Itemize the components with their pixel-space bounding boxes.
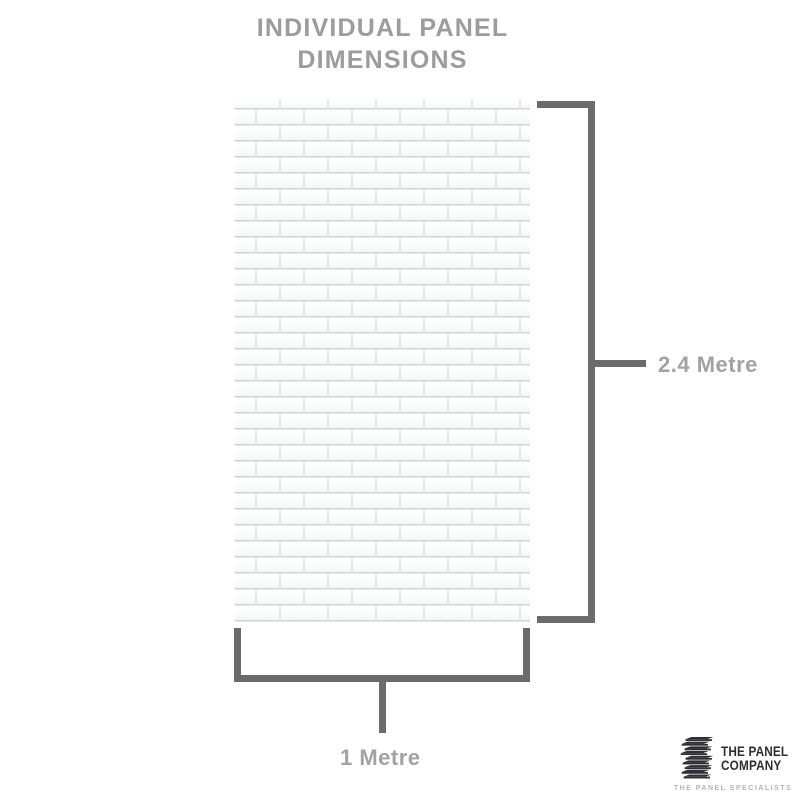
brick-tile [329, 446, 375, 460]
brick-row [235, 110, 530, 124]
brick-tile [497, 462, 530, 476]
brick-tile [353, 366, 399, 380]
height-bracket-bottom-arm [537, 616, 595, 623]
brick-tile [329, 510, 375, 524]
brick-tile [235, 526, 255, 540]
page-title-line1: INDIVIDUAL PANEL [185, 12, 580, 44]
brick-tile [377, 350, 423, 364]
brick-tile [281, 574, 327, 588]
brick-tile [329, 574, 375, 588]
brick-tile [235, 254, 279, 268]
brick-tile [257, 398, 303, 412]
brick-tile [521, 100, 530, 108]
brick-row [235, 478, 530, 492]
brick-tile [353, 206, 399, 220]
brick-tile [377, 606, 423, 620]
brick-tile [425, 126, 471, 140]
brick-tile [449, 430, 495, 444]
brick-tile [377, 254, 423, 268]
brick-row [235, 494, 530, 508]
brick-tile [425, 382, 471, 396]
brick-row [235, 446, 530, 460]
brick-tile [473, 478, 519, 492]
brick-tile [425, 510, 471, 524]
brick-row [235, 100, 530, 108]
brick-row [235, 238, 530, 252]
brick-tile [305, 206, 351, 220]
brick-row [235, 206, 530, 220]
brick-tile [329, 606, 375, 620]
brick-tile [497, 142, 530, 156]
brick-tile [235, 302, 255, 316]
brick-tile [281, 190, 327, 204]
brick-tile [235, 142, 255, 156]
brick-tile [425, 542, 471, 556]
brick-tile [353, 302, 399, 316]
brick-row [235, 286, 530, 300]
brick-tile [235, 478, 279, 492]
brick-tile [235, 462, 255, 476]
brick-tile [257, 590, 303, 604]
brick-row [235, 142, 530, 156]
brick-tile [329, 100, 375, 108]
brick-tile [473, 446, 519, 460]
brick-tile [305, 334, 351, 348]
brick-tile [377, 382, 423, 396]
brick-tile [449, 398, 495, 412]
brick-tile [377, 574, 423, 588]
brick-tile [305, 494, 351, 508]
brick-tile [425, 222, 471, 236]
brick-tile [449, 238, 495, 252]
brick-tile [257, 494, 303, 508]
brick-tile [377, 414, 423, 428]
brick-tile [497, 366, 530, 380]
brick-tile [425, 318, 471, 332]
brick-tile [281, 510, 327, 524]
logo-name: THE PANEL COMPANY [721, 744, 788, 772]
brick-tile [281, 286, 327, 300]
brick-tile [353, 174, 399, 188]
brick-tile [377, 100, 423, 108]
brick-tile [305, 590, 351, 604]
brick-tile [377, 478, 423, 492]
brick-tile [353, 462, 399, 476]
brick-row [235, 174, 530, 188]
brick-tile [449, 526, 495, 540]
brick-tile [521, 574, 530, 588]
brick-tile [449, 302, 495, 316]
brick-row [235, 462, 530, 476]
height-bracket-tick [593, 360, 646, 367]
brick-row [235, 622, 530, 623]
brick-tile [305, 366, 351, 380]
brick-tile [401, 238, 447, 252]
brick-tile [521, 126, 530, 140]
brick-tile [449, 174, 495, 188]
brick-tile [235, 574, 279, 588]
brick-tile [305, 430, 351, 444]
brick-tile [377, 542, 423, 556]
brick-tile [235, 190, 279, 204]
brick-tile [329, 158, 375, 172]
brick-tile [449, 462, 495, 476]
company-logo: THE PANEL COMPANY THE PANEL SPECIALISTS [672, 736, 794, 792]
brick-tile [329, 286, 375, 300]
brick-row [235, 158, 530, 172]
brick-tile [497, 334, 530, 348]
brick-tile [235, 398, 255, 412]
brick-tile [235, 606, 279, 620]
stacked-panels-icon [678, 736, 718, 780]
page-title-line2: DIMENSIONS [185, 44, 580, 76]
brick-row [235, 510, 530, 524]
brick-tile [401, 334, 447, 348]
brick-tile [449, 142, 495, 156]
brick-tile [257, 142, 303, 156]
brick-tile [377, 446, 423, 460]
brick-tile [497, 430, 530, 444]
brick-tile [329, 350, 375, 364]
brick-tile [353, 270, 399, 284]
brick-row [235, 366, 530, 380]
brick-tile [425, 350, 471, 364]
brick-tile [235, 334, 255, 348]
panel-texture [235, 100, 530, 623]
brick-row [235, 350, 530, 364]
brick-tile [281, 126, 327, 140]
brick-tile [425, 254, 471, 268]
brick-row [235, 430, 530, 444]
brick-tile [425, 446, 471, 460]
brick-tile [401, 270, 447, 284]
brick-tile [235, 558, 255, 572]
brick-tile [449, 334, 495, 348]
brick-tile [449, 622, 495, 623]
brick-tile [473, 574, 519, 588]
brick-tile [353, 398, 399, 412]
brick-tile [425, 414, 471, 428]
brick-tile [353, 558, 399, 572]
brick-tile [497, 526, 530, 540]
brick-tile [235, 590, 255, 604]
brick-tile [235, 158, 279, 172]
brick-tile [521, 510, 530, 524]
brick-tile [305, 270, 351, 284]
brick-tile [449, 494, 495, 508]
brick-tile [473, 510, 519, 524]
brick-tile [497, 174, 530, 188]
brick-tile [329, 382, 375, 396]
brick-tile [473, 382, 519, 396]
brick-tile [521, 318, 530, 332]
brick-tile [497, 302, 530, 316]
brick-tile [497, 398, 530, 412]
brick-tile [257, 238, 303, 252]
brick-row [235, 302, 530, 316]
brick-tile [425, 158, 471, 172]
brick-tile [235, 510, 279, 524]
brick-tile [473, 414, 519, 428]
brick-tile [521, 286, 530, 300]
brick-tile [401, 142, 447, 156]
brick-tile [377, 286, 423, 300]
brick-tile [305, 302, 351, 316]
brick-tile [235, 366, 255, 380]
logo-name-line1: THE PANEL [721, 744, 788, 758]
brick-row [235, 254, 530, 268]
brick-tile [329, 478, 375, 492]
brick-tile [235, 350, 279, 364]
brick-tile [353, 238, 399, 252]
page-title: INDIVIDUAL PANEL DIMENSIONS [185, 12, 580, 76]
height-bracket-top-arm [537, 101, 595, 108]
logo-name-line2: COMPANY [721, 758, 788, 772]
brick-tile [305, 142, 351, 156]
brick-tile [401, 398, 447, 412]
brick-row [235, 398, 530, 412]
brick-tile [281, 382, 327, 396]
brick-tile [521, 382, 530, 396]
brick-tile [497, 558, 530, 572]
brick-row [235, 574, 530, 588]
brick-tile [281, 318, 327, 332]
brick-tile [521, 606, 530, 620]
brick-tile [449, 270, 495, 284]
brick-tile [521, 222, 530, 236]
brick-tile [425, 286, 471, 300]
brick-row [235, 606, 530, 620]
width-bracket-right-arm [523, 628, 530, 682]
brick-row [235, 526, 530, 540]
brick-tile [281, 100, 327, 108]
brick-row [235, 558, 530, 572]
brick-row [235, 334, 530, 348]
brick-tile [401, 462, 447, 476]
brick-tile [353, 334, 399, 348]
brick-tile [281, 222, 327, 236]
brick-tile [401, 174, 447, 188]
brick-row [235, 190, 530, 204]
brick-tile [305, 174, 351, 188]
brick-tile [401, 366, 447, 380]
brick-tile [497, 206, 530, 220]
brick-tile [281, 158, 327, 172]
panel-illustration [235, 100, 530, 623]
brick-tile [353, 526, 399, 540]
brick-tile [281, 606, 327, 620]
brick-tile [257, 334, 303, 348]
brick-tile [473, 350, 519, 364]
brick-tile [305, 110, 351, 124]
logo-tagline: THE PANEL SPECIALISTS [672, 785, 794, 792]
brick-tile [329, 222, 375, 236]
brick-tile [521, 446, 530, 460]
brick-tile [473, 318, 519, 332]
brick-tile [425, 606, 471, 620]
brick-tile [257, 206, 303, 220]
brick-tile [449, 590, 495, 604]
brick-row [235, 222, 530, 236]
brick-tile [235, 318, 279, 332]
brick-tile [305, 398, 351, 412]
width-dimension-label: 1 Metre [340, 745, 421, 771]
brick-tile [305, 238, 351, 252]
brick-row [235, 414, 530, 428]
brick-tile [449, 110, 495, 124]
brick-tile [235, 542, 279, 556]
brick-tile [401, 558, 447, 572]
brick-tile [473, 100, 519, 108]
brick-tile [257, 174, 303, 188]
brick-tile [281, 350, 327, 364]
brick-tile [497, 270, 530, 284]
brick-tile [235, 126, 279, 140]
brick-tile [425, 190, 471, 204]
brick-tile [377, 190, 423, 204]
brick-tile [257, 462, 303, 476]
brick-tile [235, 110, 255, 124]
brick-tile [521, 158, 530, 172]
brick-tile [377, 318, 423, 332]
brick-tile [329, 318, 375, 332]
brick-tile [521, 414, 530, 428]
brick-tile [473, 222, 519, 236]
brick-tile [257, 558, 303, 572]
brick-tile [235, 414, 279, 428]
brick-tile [401, 526, 447, 540]
infographic-canvas: INDIVIDUAL PANEL DIMENSIONS 2.4 Metre 1 … [0, 0, 800, 800]
brick-tile [377, 126, 423, 140]
brick-tile [305, 462, 351, 476]
brick-tile [235, 270, 255, 284]
brick-tile [521, 350, 530, 364]
brick-tile [449, 206, 495, 220]
brick-tile [521, 190, 530, 204]
brick-tile [305, 526, 351, 540]
brick-tile [473, 286, 519, 300]
brick-row [235, 542, 530, 556]
brick-tile [235, 100, 279, 108]
brick-tile [235, 430, 255, 444]
brick-tile [257, 302, 303, 316]
brick-tile [353, 142, 399, 156]
brick-tile [473, 606, 519, 620]
brick-tile [401, 110, 447, 124]
brick-tile [329, 414, 375, 428]
brick-row [235, 590, 530, 604]
brick-tile [353, 430, 399, 444]
brick-tile [235, 286, 279, 300]
brick-tile [257, 526, 303, 540]
brick-tile [401, 622, 447, 623]
brick-tile [377, 510, 423, 524]
brick-tile [497, 590, 530, 604]
brick-tile [281, 446, 327, 460]
brick-tile [257, 622, 303, 623]
brick-tile [281, 542, 327, 556]
brick-tile [449, 366, 495, 380]
brick-tile [473, 158, 519, 172]
brick-row [235, 126, 530, 140]
brick-tile [473, 542, 519, 556]
brick-tile [473, 190, 519, 204]
brick-tile [235, 446, 279, 460]
brick-tile [353, 110, 399, 124]
brick-tile [497, 110, 530, 124]
brick-tile [257, 110, 303, 124]
brick-tile [235, 238, 255, 252]
brick-tile [235, 206, 255, 220]
brick-tile [425, 100, 471, 108]
brick-tile [401, 494, 447, 508]
width-bracket-left-arm [234, 628, 241, 682]
brick-tile [281, 478, 327, 492]
brick-tile [305, 558, 351, 572]
brick-tile [257, 270, 303, 284]
brick-tile [401, 302, 447, 316]
brick-tile [377, 158, 423, 172]
brick-tile [425, 478, 471, 492]
brick-tile [521, 254, 530, 268]
brick-row [235, 382, 530, 396]
width-bracket-tick [379, 682, 386, 733]
brick-tile [497, 622, 530, 623]
height-dimension-label: 2.4 Metre [658, 352, 758, 378]
brick-tile [449, 558, 495, 572]
brick-tile [235, 174, 255, 188]
brick-tile [353, 590, 399, 604]
brick-tile [257, 366, 303, 380]
brick-tile [329, 190, 375, 204]
brick-tile [305, 622, 351, 623]
brick-tile [235, 382, 279, 396]
brick-tile [425, 574, 471, 588]
brick-tile [281, 414, 327, 428]
brick-tile [401, 206, 447, 220]
brick-tile [497, 494, 530, 508]
brick-tile [401, 430, 447, 444]
brick-tile [521, 542, 530, 556]
brick-tile [235, 494, 255, 508]
brick-tile [473, 254, 519, 268]
brick-tile [353, 622, 399, 623]
brick-tile [473, 126, 519, 140]
width-bracket-bar [234, 675, 530, 682]
brick-tile [377, 222, 423, 236]
brick-tile [329, 126, 375, 140]
brick-tile [497, 238, 530, 252]
brick-row [235, 270, 530, 284]
brick-tile [235, 222, 279, 236]
brick-tile [521, 478, 530, 492]
brick-tile [329, 254, 375, 268]
brick-tile [235, 622, 255, 623]
brick-tile [281, 254, 327, 268]
brick-tile [401, 590, 447, 604]
brick-tile [257, 430, 303, 444]
brick-tile [353, 494, 399, 508]
brick-tile [329, 542, 375, 556]
brick-row [235, 318, 530, 332]
